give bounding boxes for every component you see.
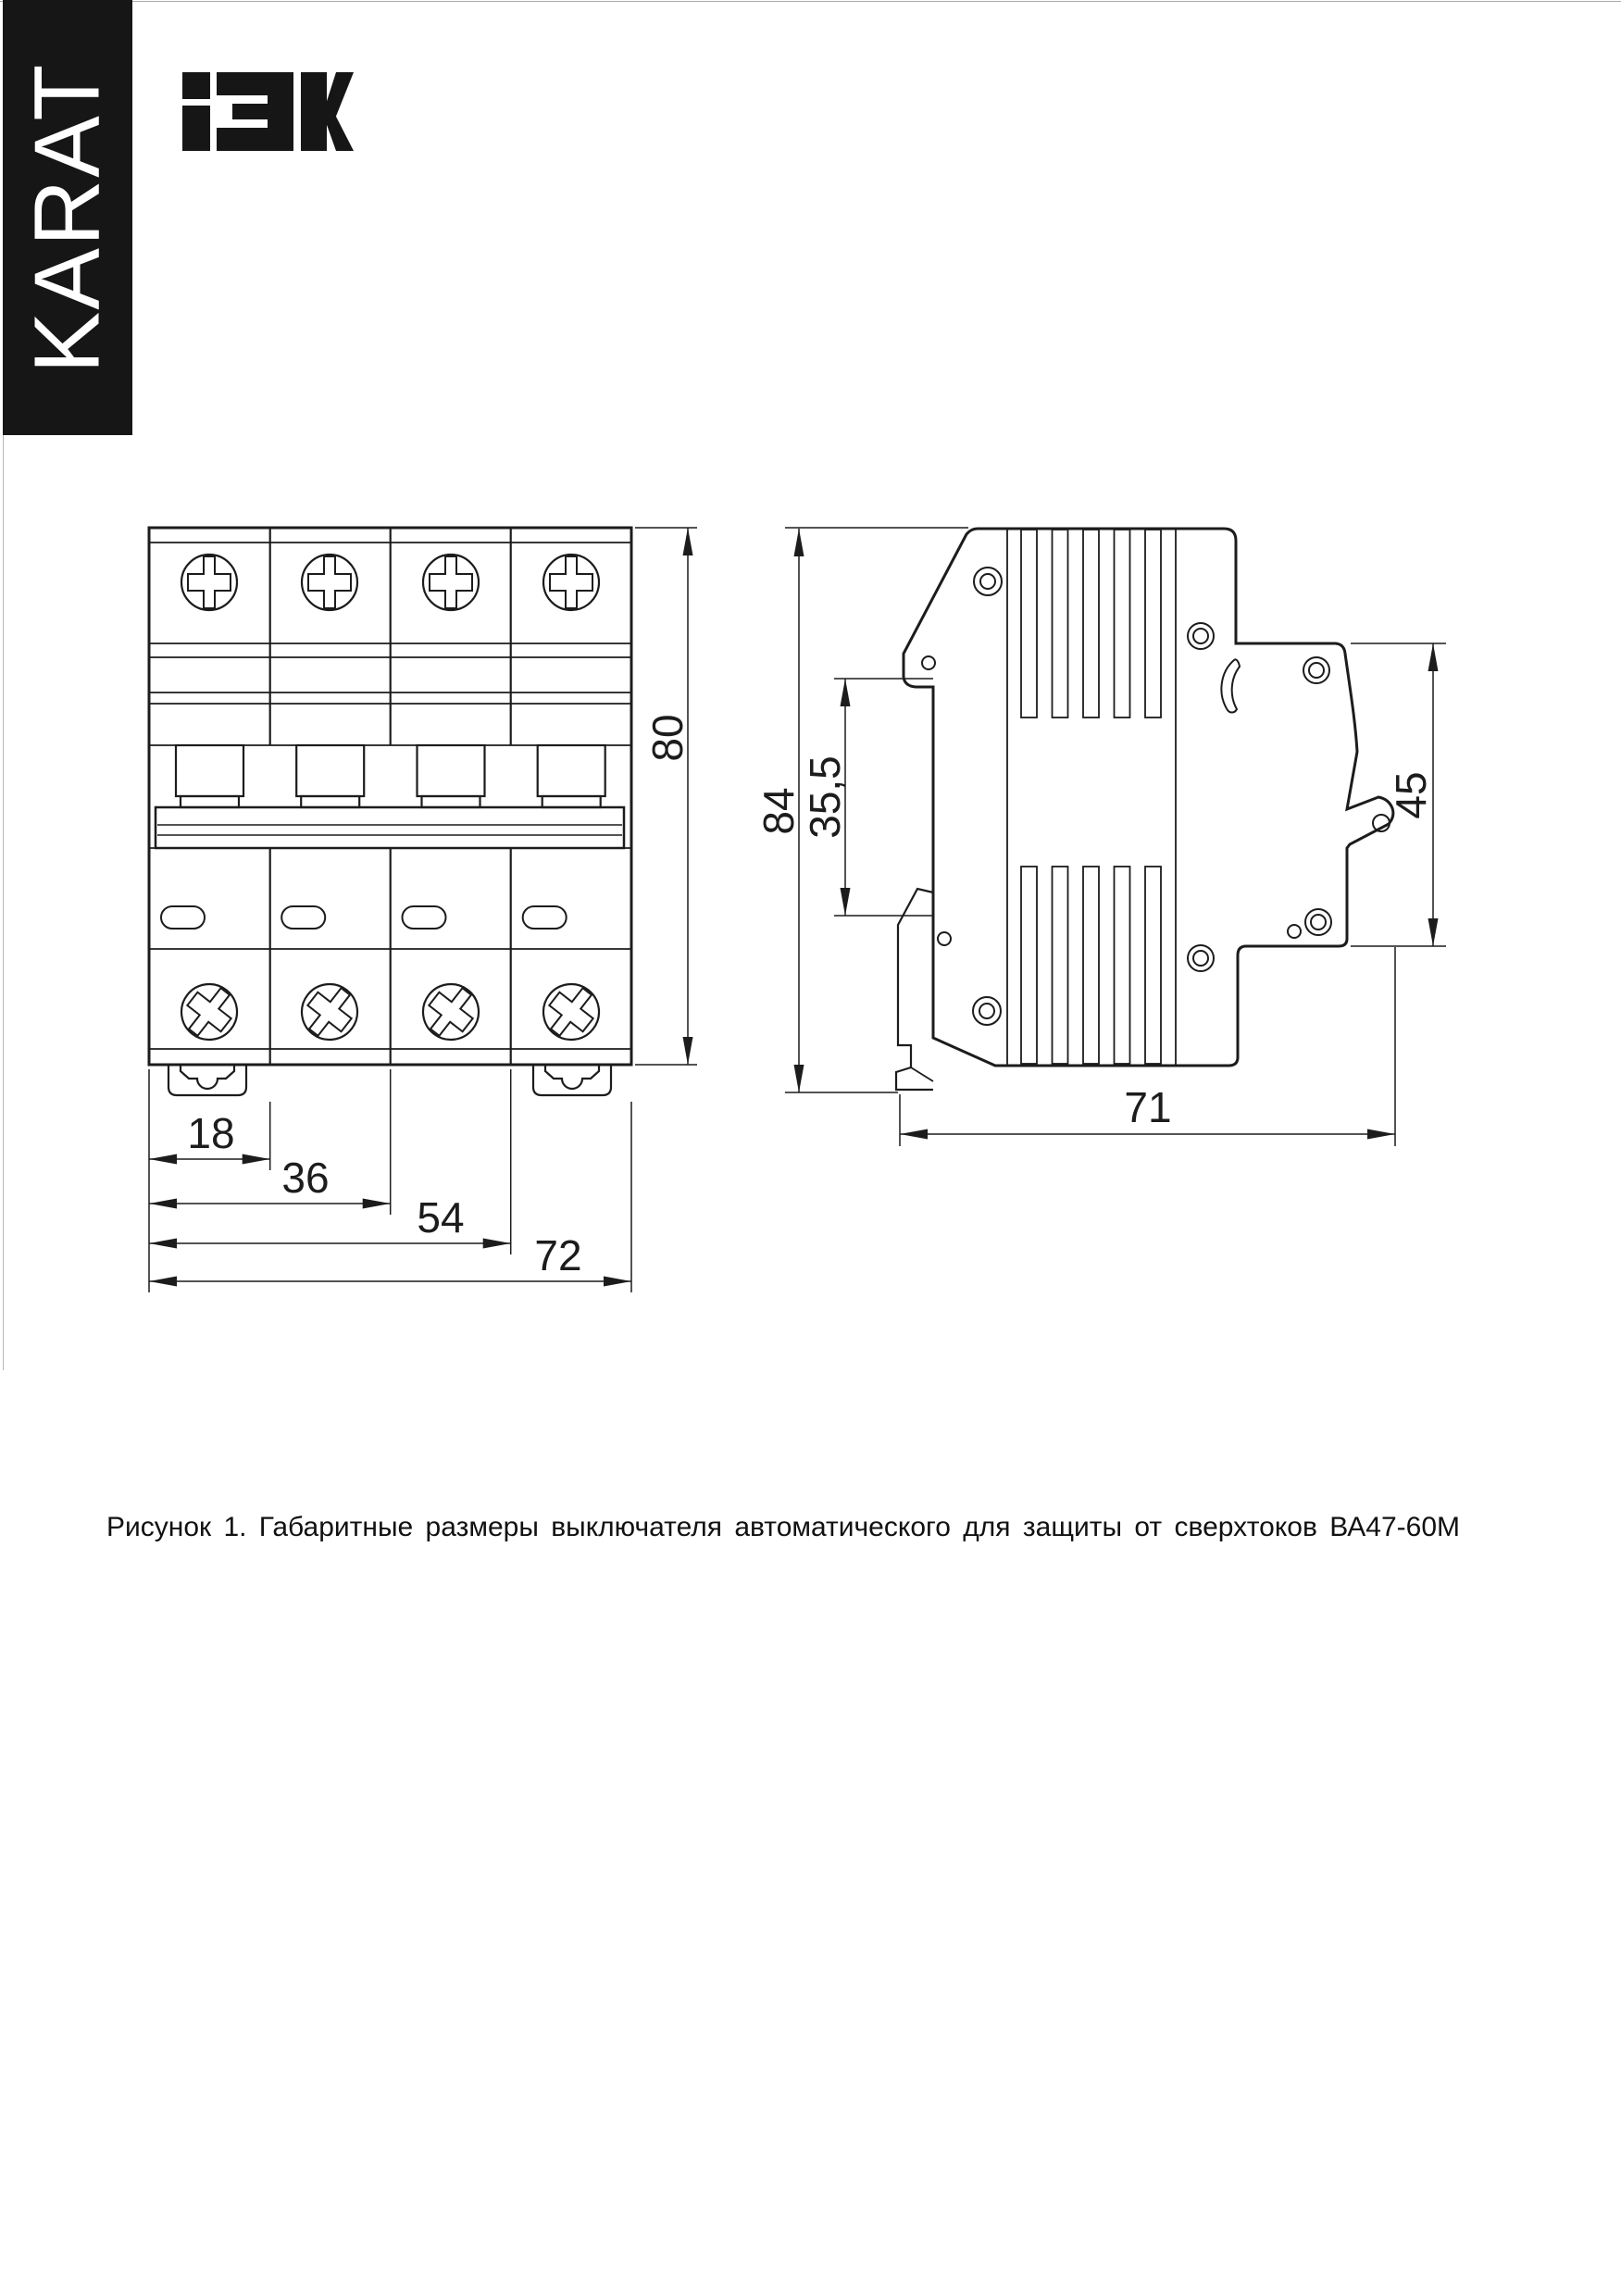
side-dim-height: 84: [754, 528, 968, 1092]
front-dim-height-label: 80: [643, 714, 692, 761]
side-dim-depth: 71: [900, 947, 1395, 1146]
side-panel-edges: [1007, 529, 1176, 1066]
side-vent-slots-bottom: [1021, 867, 1161, 1064]
figure-caption: Рисунок 1. Габаритные размеры выключател…: [106, 1511, 1460, 1544]
front-dim-module2-label: 36: [281, 1154, 329, 1202]
front-marking-windows: [161, 906, 567, 929]
side-screw-bosses: [973, 568, 1331, 1025]
dimensional-drawing: 80 18 36 54: [0, 0, 1621, 1389]
front-dim-module3: 54: [149, 1193, 511, 1249]
side-pin-holes: [922, 656, 1390, 945]
front-dim-module1: 18: [149, 1109, 270, 1165]
side-view: 84 35,5 45 71: [754, 528, 1446, 1146]
front-dim-height: 80: [635, 528, 697, 1065]
front-toggle-handles: [176, 745, 605, 807]
front-dim-module1-label: 18: [187, 1109, 234, 1157]
side-crescent-slot: [1221, 659, 1240, 712]
side-din-clip: [896, 889, 933, 1090]
side-dim-front-face-label: 45: [1387, 771, 1435, 818]
side-body-outline: [904, 529, 1393, 1066]
side-dim-rail-window-label: 35,5: [801, 755, 849, 839]
side-dim-depth-label: 71: [1124, 1083, 1171, 1131]
front-tie-bar: [156, 807, 624, 848]
document-page: { "brand": { "karat": "KARAT", "iek": "I…: [0, 0, 1621, 2296]
front-view: 80 18 36 54: [149, 528, 697, 1292]
front-dim-module3-label: 54: [417, 1193, 464, 1242]
side-vent-slots-top: [1021, 530, 1161, 717]
side-dim-rail-window: 35,5: [801, 679, 933, 916]
side-dim-front-face: 45: [1351, 643, 1446, 946]
front-dim-total-width: 72: [149, 1231, 631, 1287]
side-dim-height-label: 84: [754, 787, 803, 834]
front-dim-total-width-label: 72: [534, 1231, 581, 1279]
